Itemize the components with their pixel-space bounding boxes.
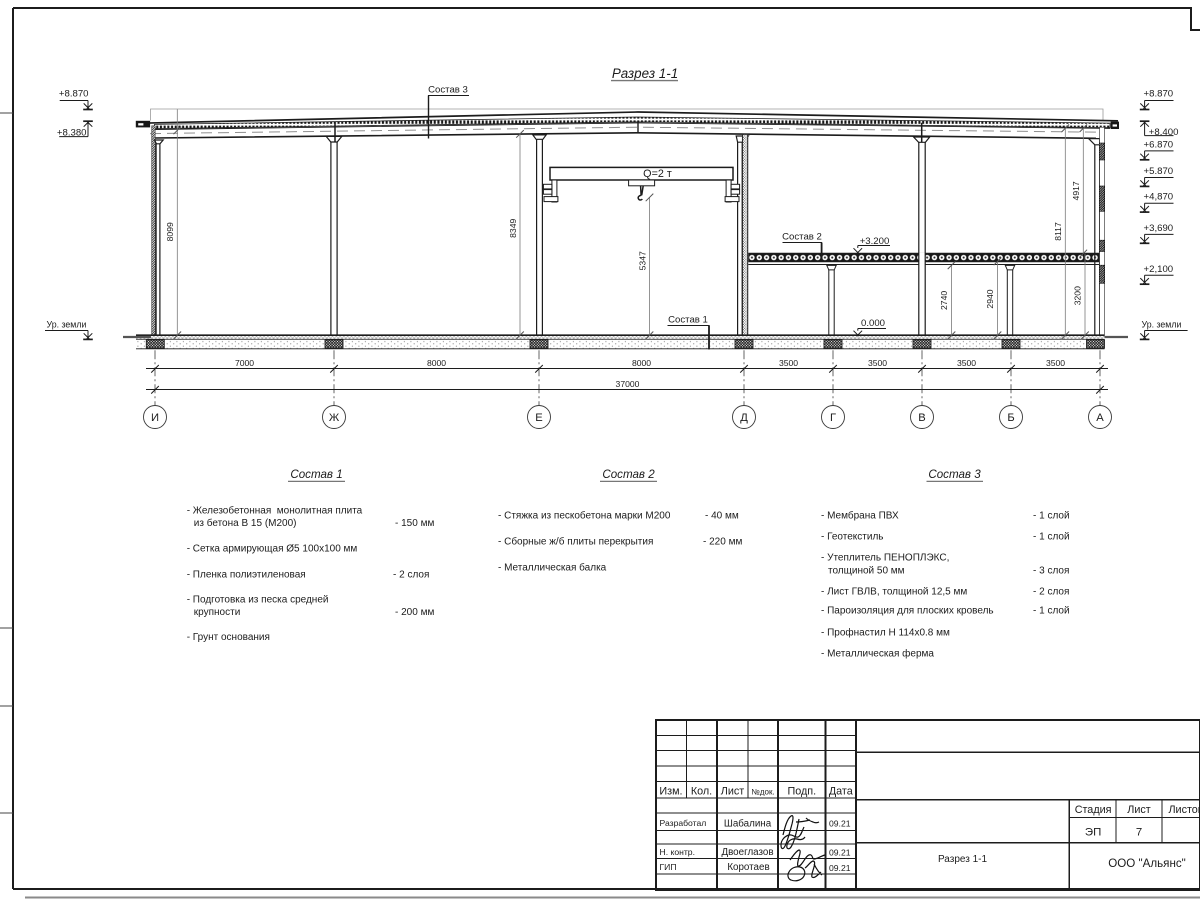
svg-text:Состав 3: Состав 3 <box>928 468 981 481</box>
svg-text:А: А <box>1096 412 1104 424</box>
svg-text:3500: 3500 <box>957 358 976 368</box>
svg-text:ООО "Альянс": ООО "Альянс" <box>1108 857 1186 870</box>
svg-text:Ж: Ж <box>329 412 340 424</box>
svg-text:+3,690: +3,690 <box>1144 223 1174 234</box>
svg-text:Н. контр.: Н. контр. <box>660 847 695 857</box>
svg-text:Шабалина: Шабалина <box>724 818 772 829</box>
svg-text:Коротаев: Коротаев <box>727 862 769 873</box>
svg-text:- Пленка полиэтиленовая: - Пленка полиэтиленовая <box>187 570 306 581</box>
svg-text:Б: Б <box>1007 412 1014 424</box>
svg-text:8349: 8349 <box>508 219 518 238</box>
svg-text:8000: 8000 <box>427 358 446 368</box>
svg-text:- 1 слой: - 1 слой <box>1033 511 1070 522</box>
svg-text:Состав 2: Состав 2 <box>602 468 655 481</box>
svg-text:- Железобетонная монолитная п: - Железобетонная монолитная плита <box>187 505 363 517</box>
svg-text:+5.870: +5.870 <box>1144 166 1174 177</box>
svg-text:5347: 5347 <box>637 251 647 270</box>
svg-text:8117: 8117 <box>1053 222 1063 241</box>
svg-text:2740: 2740 <box>939 291 949 310</box>
svg-text:37000: 37000 <box>616 379 640 389</box>
svg-text:Е: Е <box>535 412 542 424</box>
svg-text:- 1 слой: - 1 слой <box>1033 606 1070 617</box>
svg-text:- 150 мм: - 150 мм <box>395 518 434 529</box>
svg-text:И: И <box>151 412 159 424</box>
svg-text:Разрез 1-1: Разрез 1-1 <box>938 854 988 865</box>
svg-text:Г: Г <box>830 412 836 424</box>
svg-text:09.21: 09.21 <box>829 848 851 858</box>
svg-text:- 1 слой: - 1 слой <box>1033 532 1070 543</box>
svg-text:толщиной 50 мм: толщиной 50 мм <box>828 566 905 577</box>
svg-text:3500: 3500 <box>779 358 798 368</box>
svg-text:- Сетка армирующая Ø5 100х100: - Сетка армирующая Ø5 100х100 мм <box>187 544 358 555</box>
svg-text:2940: 2940 <box>985 289 995 308</box>
svg-text:09.21: 09.21 <box>829 818 851 828</box>
svg-text:Подп.: Подп. <box>787 786 816 798</box>
svg-text:Ур. земли: Ур. земли <box>1142 319 1182 329</box>
svg-text:- Металлическая ферма: - Металлическая ферма <box>821 648 934 660</box>
svg-text:В: В <box>918 412 925 424</box>
svg-text:- 3 слоя: - 3 слоя <box>1033 566 1069 577</box>
svg-text:0.000: 0.000 <box>861 318 885 329</box>
svg-text:8000: 8000 <box>632 358 651 368</box>
svg-text:крупности: крупности <box>194 607 241 618</box>
svg-text:Состав 1: Состав 1 <box>290 468 342 481</box>
svg-text:- 40 мм: - 40 мм <box>705 511 739 522</box>
svg-text:8099: 8099 <box>165 222 175 241</box>
svg-text:Q=2 т: Q=2 т <box>643 168 672 180</box>
svg-text:+8.400: +8.400 <box>1149 127 1179 138</box>
svg-text:Двоеглазов: Двоеглазов <box>721 847 773 858</box>
svg-text:из бетона В 15 (М200): из бетона В 15 (М200) <box>194 517 297 529</box>
svg-text:7: 7 <box>1136 826 1142 838</box>
svg-text:Состав 3: Состав 3 <box>428 85 468 96</box>
svg-text:- Сборные ж/б плиты перекрытия: - Сборные ж/б плиты перекрытия <box>498 536 653 548</box>
svg-text:ЭП: ЭП <box>1085 826 1101 838</box>
svg-text:3500: 3500 <box>1046 358 1065 368</box>
svg-text:Листов: Листов <box>1168 804 1200 816</box>
svg-text:- Геотекстиль: - Геотекстиль <box>821 532 884 543</box>
svg-text:- Мембрана ПВХ: - Мембрана ПВХ <box>821 510 899 522</box>
svg-text:ГИП: ГИП <box>660 862 677 872</box>
svg-text:- Металлическая балка: - Металлическая балка <box>498 562 607 574</box>
svg-text:Дата: Дата <box>829 786 853 798</box>
svg-text:Д: Д <box>740 412 748 424</box>
svg-text:Состав 1: Состав 1 <box>668 314 708 325</box>
svg-text:- 200 мм: - 200 мм <box>395 607 434 618</box>
svg-text:+6.870: +6.870 <box>1144 139 1174 150</box>
svg-text:№док.: №док. <box>751 788 774 797</box>
svg-text:Разработал: Разработал <box>660 818 707 828</box>
svg-text:Изм.: Изм. <box>659 786 682 798</box>
svg-text:+4,870: +4,870 <box>1144 192 1174 203</box>
svg-text:3500: 3500 <box>868 358 887 368</box>
svg-text:- Стяжка из пескобетона марки: - Стяжка из пескобетона марки М200 <box>498 510 671 522</box>
svg-text:- Лист ГВЛВ, толщиной 12,5 мм: - Лист ГВЛВ, толщиной 12,5 мм <box>821 587 967 598</box>
svg-text:+8.870: +8.870 <box>59 89 89 100</box>
svg-text:+8.870: +8.870 <box>1144 88 1174 99</box>
svg-text:Ур. земли: Ур. земли <box>47 319 87 329</box>
svg-text:- Профнастил Н 114х0.8 мм: - Профнастил Н 114х0.8 мм <box>821 627 950 639</box>
svg-text:Разрез 1-1: Разрез 1-1 <box>612 66 678 81</box>
svg-text:- 2 слоя: - 2 слоя <box>1033 587 1069 598</box>
svg-text:- Грунт основания: - Грунт основания <box>187 632 270 643</box>
svg-text:Стадия: Стадия <box>1075 804 1112 816</box>
svg-text:09.21: 09.21 <box>829 863 851 873</box>
svg-text:Состав 2: Состав 2 <box>782 232 822 243</box>
svg-text:- Утеплитель ПЕНОПЛЭКС,: - Утеплитель ПЕНОПЛЭКС, <box>821 553 949 564</box>
svg-text:- Пароизоляция для плоских кро: - Пароизоляция для плоских кровель <box>821 606 994 617</box>
svg-text:- 220 мм: - 220 мм <box>703 537 742 548</box>
svg-text:Лист: Лист <box>1127 804 1151 816</box>
svg-text:Лист: Лист <box>721 786 745 798</box>
svg-text:Кол.: Кол. <box>691 786 712 798</box>
svg-text:- Подготовка из песка средней: - Подготовка из песка средней <box>187 595 329 606</box>
svg-text:4917: 4917 <box>1071 181 1081 200</box>
svg-text:3200: 3200 <box>1072 286 1082 305</box>
svg-text:7000: 7000 <box>235 358 254 368</box>
svg-text:+2,100: +2,100 <box>1144 264 1174 275</box>
svg-text:- 2 слоя: - 2 слоя <box>393 570 429 581</box>
